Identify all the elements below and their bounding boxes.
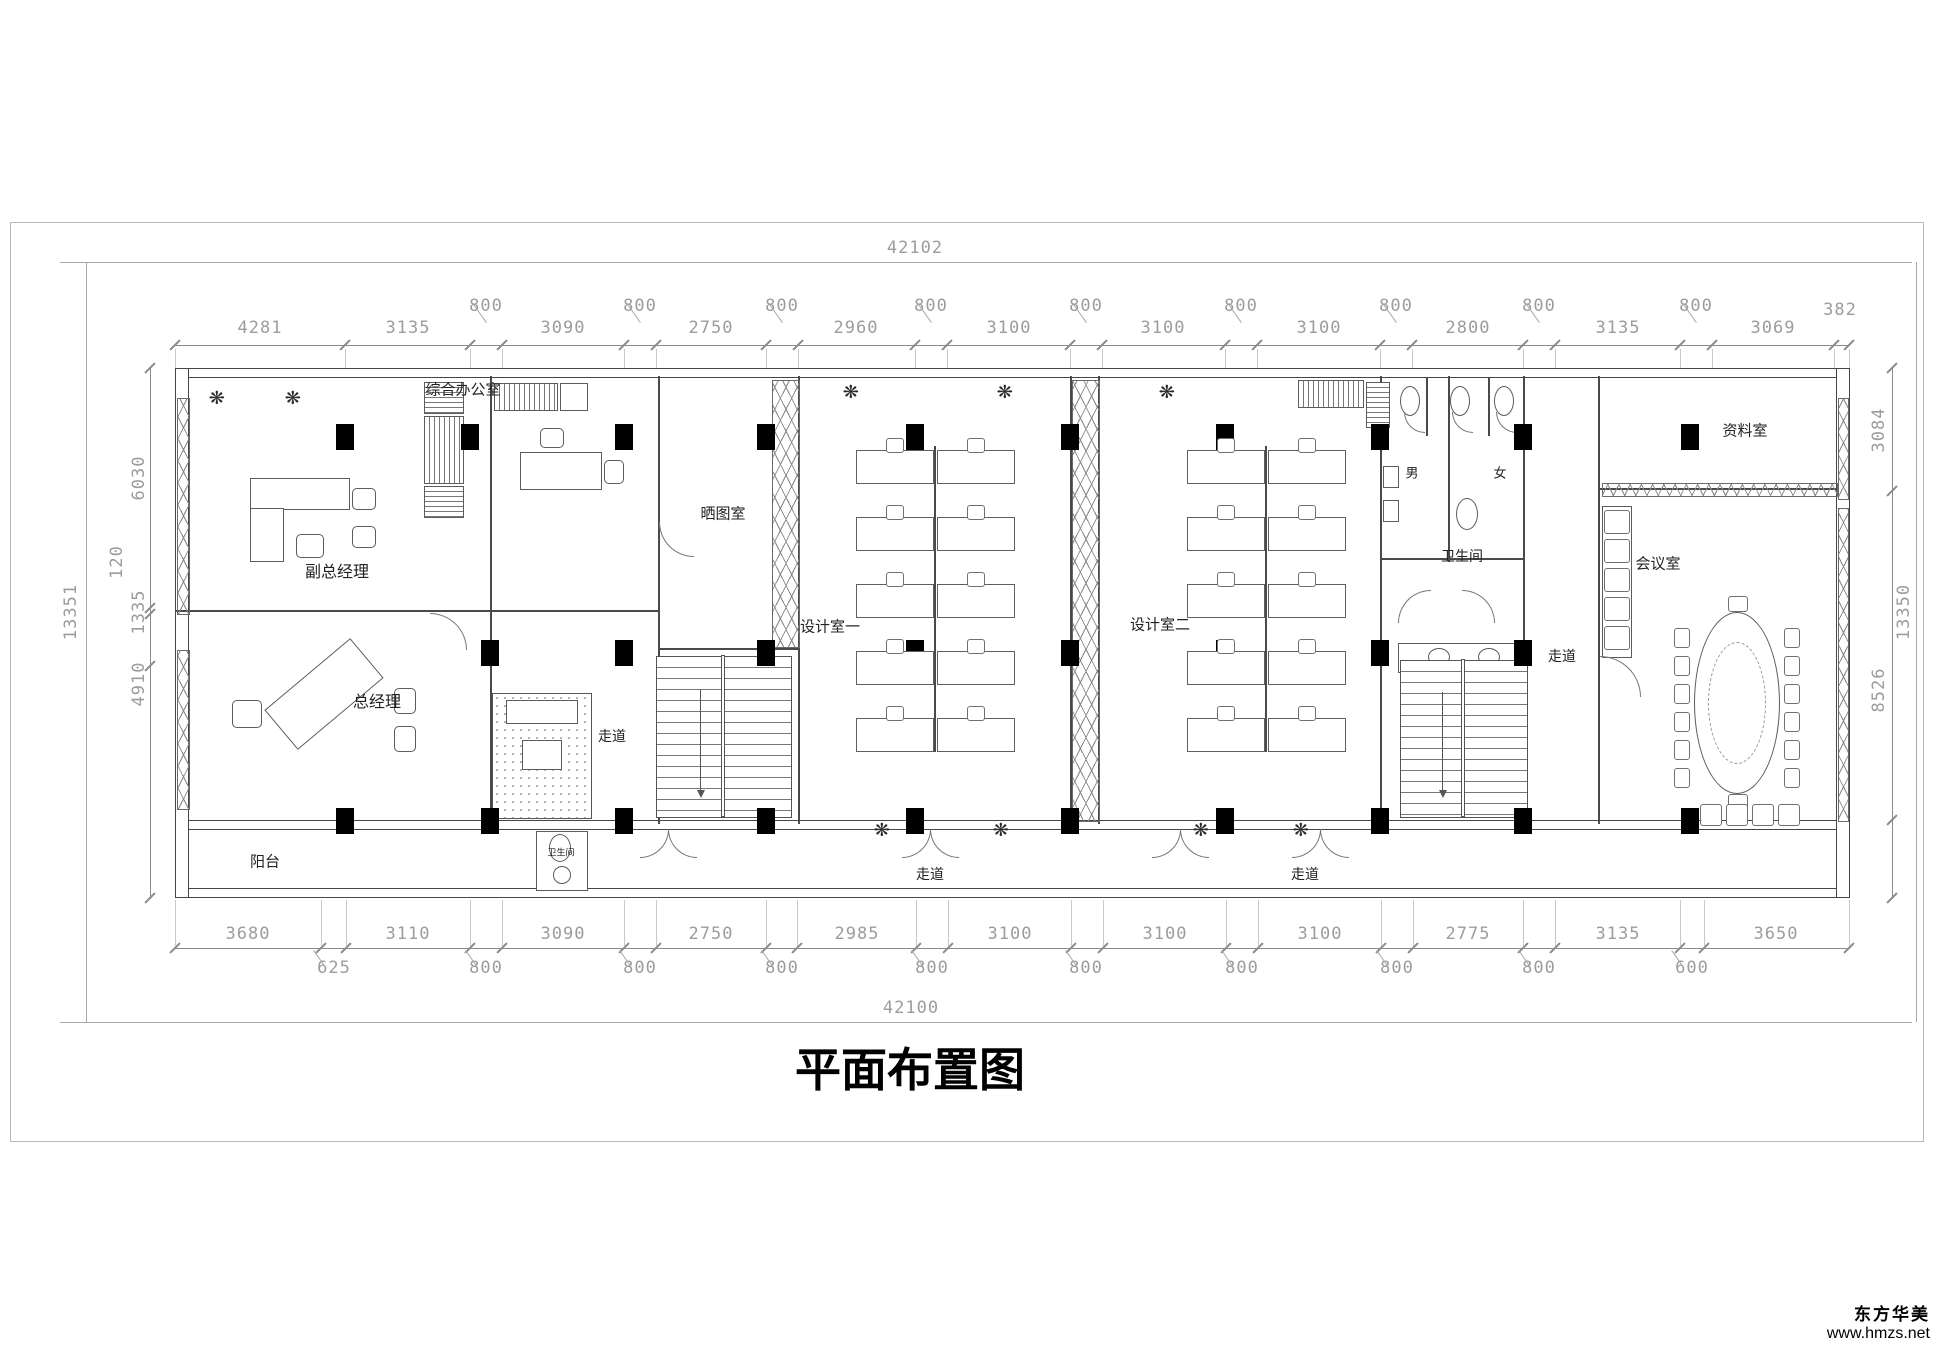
desk	[1187, 718, 1265, 752]
chair	[967, 572, 985, 587]
desk	[1268, 450, 1346, 484]
room-label-balcony: 阳台	[250, 851, 280, 872]
chair	[1674, 712, 1690, 732]
column	[1514, 808, 1532, 834]
column	[906, 424, 924, 450]
right-total-dim-line	[1916, 262, 1917, 1022]
wall-south-outer	[175, 888, 1848, 898]
window-strip	[772, 380, 800, 648]
chair	[967, 706, 985, 721]
extension-line	[1849, 900, 1850, 946]
chair	[1784, 712, 1800, 732]
dim-top-sub: 800	[1494, 296, 1584, 316]
dim-left: 120	[107, 517, 127, 607]
dim-top: 3100	[964, 318, 1054, 338]
room-label-female: 女	[1493, 463, 1506, 482]
chair	[1217, 706, 1235, 721]
chair	[1217, 639, 1235, 654]
dim-right: 3084	[1869, 385, 1889, 475]
extension-line	[1412, 349, 1413, 368]
extension-line	[1704, 900, 1705, 946]
desk	[937, 584, 1015, 618]
extension-line	[502, 900, 503, 946]
dim-bottom-sub: 800	[1494, 958, 1584, 978]
chair	[1298, 706, 1316, 721]
dim-bottom: 3090	[518, 924, 608, 944]
extension-line	[1413, 900, 1414, 946]
window-strip	[177, 398, 190, 615]
dim-right-total: 13350	[1894, 567, 1914, 657]
extension-line	[1555, 349, 1556, 368]
dim-right-top: 382	[1802, 300, 1878, 320]
chair	[1217, 505, 1235, 520]
extension-line	[321, 900, 322, 946]
extension-line	[1257, 349, 1258, 368]
dim-left: 4910	[129, 639, 149, 729]
chair	[1726, 804, 1748, 826]
office-chair	[232, 700, 262, 728]
partition	[1426, 378, 1428, 436]
urinal	[1383, 466, 1399, 488]
dim-bottom: 2750	[666, 924, 756, 944]
guest-chair	[394, 726, 416, 752]
column	[1681, 424, 1699, 450]
dim-bottom: 2985	[812, 924, 902, 944]
column	[615, 424, 633, 450]
desk	[1268, 651, 1346, 685]
chair	[967, 639, 985, 654]
column	[1061, 424, 1079, 450]
desk	[937, 651, 1015, 685]
conference-table-inlay	[1708, 642, 1766, 764]
column	[1514, 424, 1532, 450]
stair-arrow-line	[1442, 692, 1443, 790]
extension-line	[766, 900, 767, 946]
dim-top-total: 42102	[870, 238, 960, 258]
extension-line	[656, 900, 657, 946]
column	[615, 640, 633, 666]
dim-bottom-sub: 800	[441, 958, 531, 978]
extension-line	[175, 349, 176, 368]
partition	[658, 648, 800, 650]
chair	[1604, 597, 1630, 621]
column	[336, 424, 354, 450]
room-label-toilet: 卫生间	[1441, 546, 1483, 566]
room-label-archive: 资料室	[1722, 420, 1767, 441]
dim-bottom-sub: 800	[595, 958, 685, 978]
extension-line	[624, 900, 625, 946]
window-strip	[1602, 483, 1838, 497]
column	[1371, 640, 1389, 666]
partition	[1488, 378, 1490, 436]
sofa	[506, 700, 578, 724]
chair	[886, 639, 904, 654]
room-label-meeting: 会议室	[1635, 553, 1680, 574]
stair-rail	[1462, 660, 1464, 816]
partition	[175, 610, 660, 612]
office-chair	[604, 460, 624, 484]
column	[757, 640, 775, 666]
room-label-blueprint: 晒图室	[700, 503, 745, 524]
chair	[1778, 804, 1800, 826]
bottom-chain-line	[175, 948, 1849, 949]
urinal	[1383, 500, 1399, 522]
stair-arrow	[1439, 790, 1447, 798]
equipment	[1298, 380, 1364, 408]
extension-line	[1523, 900, 1524, 946]
extension-line	[1834, 349, 1835, 368]
dim-bottom: 3135	[1573, 924, 1663, 944]
extension-line	[1680, 900, 1681, 946]
dim-top: 2800	[1423, 318, 1513, 338]
chair	[1604, 539, 1630, 563]
extension-line	[1225, 349, 1226, 368]
dim-right: 8526	[1869, 645, 1889, 735]
dim-bottom-sub: 800	[887, 958, 977, 978]
watermark-brand: 东方华美	[1730, 1306, 1930, 1325]
top-chain-line	[175, 345, 1849, 346]
desk	[856, 584, 934, 618]
extension-line	[1380, 349, 1381, 368]
dim-top-sub: 800	[737, 296, 827, 316]
desk	[937, 517, 1015, 551]
extension-line	[470, 900, 471, 946]
dim-left: 6030	[129, 433, 149, 523]
dim-top: 3135	[363, 318, 453, 338]
chair	[1604, 626, 1630, 650]
desk	[856, 718, 934, 752]
room-label-deputy-gm: 副总经理	[305, 558, 369, 582]
window-strip	[177, 650, 190, 810]
column	[757, 424, 775, 450]
chair	[1298, 572, 1316, 587]
column	[336, 808, 354, 834]
extension-line	[797, 900, 798, 946]
dim-bottom: 3100	[1120, 924, 1210, 944]
dim-bottom: 3100	[965, 924, 1055, 944]
extension-line	[1226, 900, 1227, 946]
dim-bottom-sub: 800	[737, 958, 827, 978]
column	[1216, 808, 1234, 834]
plant-icon: ❋	[874, 815, 890, 841]
column	[1371, 424, 1389, 450]
dim-bottom: 3110	[363, 924, 453, 944]
desk	[856, 517, 934, 551]
desk	[1268, 517, 1346, 551]
sink	[553, 866, 571, 884]
room-label-corridor-south2: 走道	[1291, 864, 1319, 884]
toilet-fixture	[1456, 498, 1478, 530]
extension-line	[1071, 900, 1072, 946]
dim-bottom-sub: 800	[1197, 958, 1287, 978]
extension-line	[1381, 900, 1382, 946]
dim-bottom: 3680	[203, 924, 293, 944]
plant-icon: ❋	[997, 377, 1013, 403]
dim-bottom-sub: 600	[1647, 958, 1737, 978]
dim-top-sub: 800	[1351, 296, 1441, 316]
left-total-dim-line	[86, 262, 87, 1022]
extension-line	[948, 900, 949, 946]
chair	[1784, 740, 1800, 760]
dim-top: 3100	[1274, 318, 1364, 338]
guest-chair	[352, 488, 376, 510]
watermark: 东方华美 www.hmzs.net	[1730, 1306, 1930, 1342]
column	[461, 424, 479, 450]
desk	[1187, 584, 1265, 618]
dim-top-sub: 800	[441, 296, 531, 316]
chair	[1298, 639, 1316, 654]
chair	[1217, 572, 1235, 587]
chair	[1217, 438, 1235, 453]
chair	[886, 706, 904, 721]
desk	[250, 478, 350, 510]
dim-bottom-sub: 800	[1352, 958, 1442, 978]
dim-top: 3090	[518, 318, 608, 338]
dim-bottom: 3100	[1275, 924, 1365, 944]
extension-line	[656, 349, 657, 368]
room-label-gm: 总经理	[353, 688, 401, 712]
desk-spine	[934, 446, 936, 752]
desk-return	[250, 508, 284, 562]
bottom-total-dim-line	[60, 1022, 1912, 1023]
dim-bottom-sub: 625	[289, 958, 379, 978]
dim-top: 2750	[666, 318, 756, 338]
chair	[1728, 596, 1748, 612]
extension-line	[1102, 349, 1103, 368]
extension-line	[1849, 349, 1850, 368]
floor-plan-sheet: 42102 42100 13351 13350 382 4281 3135 30…	[0, 0, 1939, 1352]
cabinet	[424, 486, 464, 518]
desk	[856, 651, 934, 685]
chair	[886, 438, 904, 453]
room-label-corridor-west: 走道	[598, 726, 626, 746]
partition	[1598, 376, 1600, 824]
stair-arrow-line	[700, 690, 701, 790]
chair	[1700, 804, 1722, 826]
desk	[1187, 517, 1265, 551]
dim-top-sub: 800	[1196, 296, 1286, 316]
column	[1514, 640, 1532, 666]
column	[615, 808, 633, 834]
extension-line	[345, 349, 346, 368]
chair	[1604, 568, 1630, 592]
column	[1061, 808, 1079, 834]
dim-top: 3100	[1118, 318, 1208, 338]
room-label-general-office: 综合办公室	[425, 379, 500, 400]
extension-line	[502, 349, 503, 368]
dim-top-sub: 800	[886, 296, 976, 316]
extension-line	[470, 349, 471, 368]
extension-line	[624, 349, 625, 368]
extension-line	[916, 900, 917, 946]
office-chair	[296, 534, 324, 558]
dim-bottom-total: 42100	[866, 998, 956, 1018]
chair	[1752, 804, 1774, 826]
plant-icon: ❋	[1193, 815, 1209, 841]
extension-line	[947, 349, 948, 368]
chair	[886, 505, 904, 520]
stair-arrow	[697, 790, 705, 798]
extension-line	[346, 900, 347, 946]
equipment	[560, 383, 588, 411]
stairs-east	[1400, 660, 1528, 818]
extension-line	[1070, 349, 1071, 368]
watermark-site: www.hmzs.net	[1730, 1325, 1930, 1343]
desk	[520, 452, 602, 490]
dim-bottom: 3650	[1731, 924, 1821, 944]
dim-top: 2960	[811, 318, 901, 338]
chair	[1604, 510, 1630, 534]
plant-icon: ❋	[1293, 815, 1309, 841]
extension-line	[1555, 900, 1556, 946]
chair	[1674, 740, 1690, 760]
desk	[1268, 584, 1346, 618]
column	[481, 808, 499, 834]
cabinet	[494, 383, 558, 411]
chair	[886, 572, 904, 587]
extension-line	[1680, 349, 1681, 368]
chair	[1674, 768, 1690, 788]
desk	[856, 450, 934, 484]
column	[906, 808, 924, 834]
room-label-corridor-east: 走道	[1548, 646, 1576, 666]
extension-line	[798, 349, 799, 368]
extension-line	[1258, 900, 1259, 946]
extension-line	[1523, 349, 1524, 368]
dim-top-sub: 800	[595, 296, 685, 316]
desk	[1187, 651, 1265, 685]
dim-top: 4281	[215, 318, 305, 338]
dim-top: 3135	[1573, 318, 1663, 338]
column	[1681, 808, 1699, 834]
desk	[937, 450, 1015, 484]
desk	[1187, 450, 1265, 484]
column	[481, 640, 499, 666]
drawing-title: 平面布置图	[745, 1034, 1075, 1100]
chair	[1298, 438, 1316, 453]
column	[1061, 640, 1079, 666]
chair	[1784, 768, 1800, 788]
top-total-dim-line	[60, 262, 1912, 263]
column	[1371, 808, 1389, 834]
chair	[1784, 656, 1800, 676]
chair	[1784, 684, 1800, 704]
coffee-table	[522, 740, 562, 770]
equipment	[1366, 382, 1390, 428]
room-label-design1: 设计室一	[800, 616, 860, 637]
plant-icon: ❋	[285, 383, 301, 409]
desk-spine	[1265, 446, 1267, 752]
chair	[1298, 505, 1316, 520]
extension-line	[1712, 349, 1713, 368]
chair	[1674, 656, 1690, 676]
room-label-corridor-south1: 走道	[916, 864, 944, 884]
extension-line	[766, 349, 767, 368]
dim-bottom: 2775	[1423, 924, 1513, 944]
column	[757, 808, 775, 834]
room-label-male: 男	[1405, 463, 1418, 482]
room-label-design2: 设计室二	[1130, 614, 1190, 635]
office-chair	[540, 428, 564, 448]
chair	[1674, 628, 1690, 648]
extension-line	[1103, 900, 1104, 946]
bookshelf	[424, 416, 464, 484]
plant-icon: ❋	[843, 377, 859, 403]
dim-bottom-sub: 800	[1041, 958, 1131, 978]
plant-icon: ❋	[209, 383, 225, 409]
chair	[1784, 628, 1800, 648]
stair-rail	[722, 656, 724, 816]
chair	[967, 505, 985, 520]
dim-left-total: 13351	[61, 567, 81, 657]
left-chain-line	[150, 368, 151, 899]
desk	[937, 718, 1015, 752]
window-strip	[1838, 508, 1849, 822]
desk	[1268, 718, 1346, 752]
room-label-toilet-small: 卫生间	[547, 846, 574, 859]
stairs-west	[656, 656, 792, 818]
window-strip	[1838, 398, 1849, 500]
dim-top: 3069	[1728, 318, 1818, 338]
plant-icon: ❋	[1159, 377, 1175, 403]
dim-top-sub: 800	[1651, 296, 1741, 316]
guest-chair	[352, 526, 376, 548]
chair	[1674, 684, 1690, 704]
plant-icon: ❋	[993, 815, 1009, 841]
extension-line	[915, 349, 916, 368]
extension-line	[175, 900, 176, 946]
dim-top-sub: 800	[1041, 296, 1131, 316]
chair	[967, 438, 985, 453]
